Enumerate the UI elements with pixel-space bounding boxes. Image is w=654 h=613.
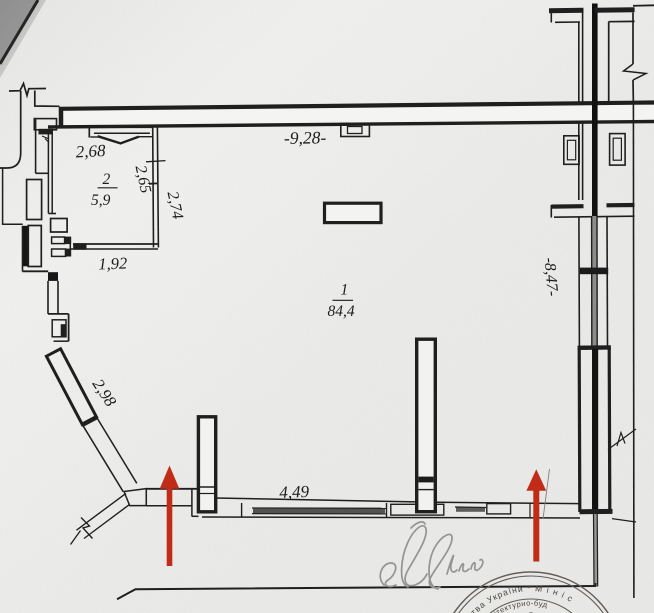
svg-text:1,92: 1,92: [98, 254, 128, 274]
svg-text:4,49: 4,49: [279, 482, 310, 502]
svg-text:2,68: 2,68: [75, 141, 106, 162]
svg-text:1: 1: [341, 282, 349, 299]
svg-text:-8,47-: -8,47-: [541, 257, 561, 297]
svg-text:5,9: 5,9: [91, 192, 111, 209]
svg-text:84,4: 84,4: [328, 303, 355, 320]
svg-text:2: 2: [103, 171, 111, 188]
svg-text:-9,28-: -9,28-: [284, 127, 327, 148]
